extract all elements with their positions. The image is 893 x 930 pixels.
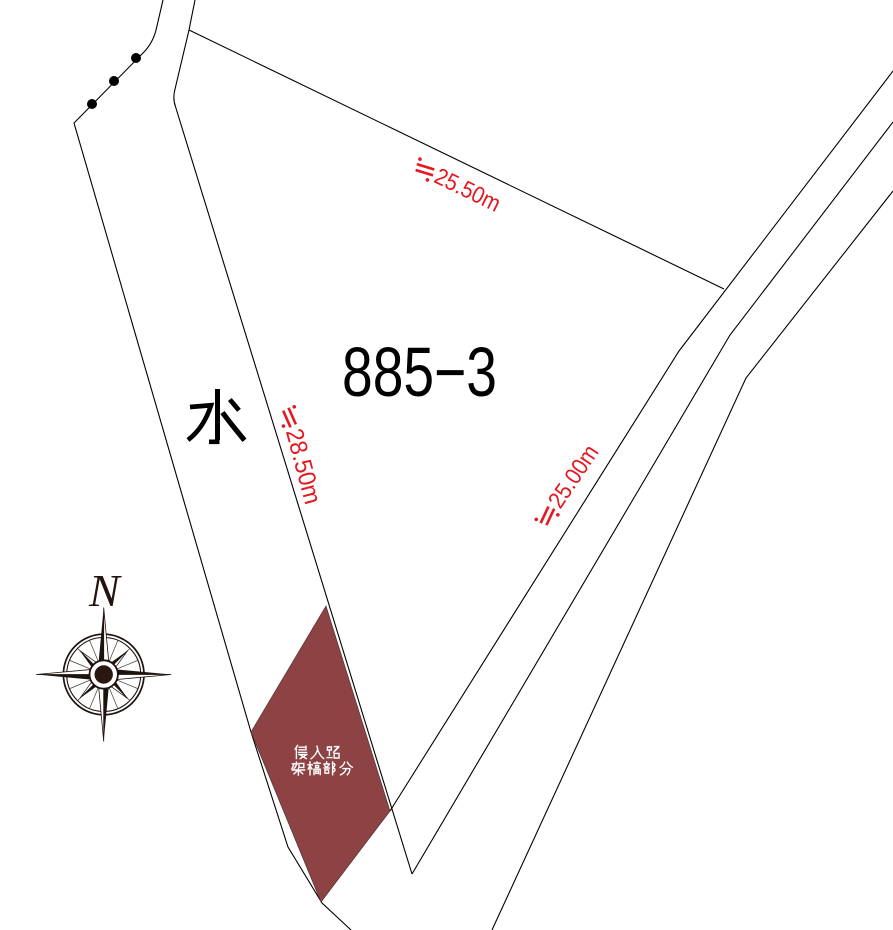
svg-text:885−3: 885−3 <box>342 333 497 411</box>
svg-text:N: N <box>88 565 122 616</box>
